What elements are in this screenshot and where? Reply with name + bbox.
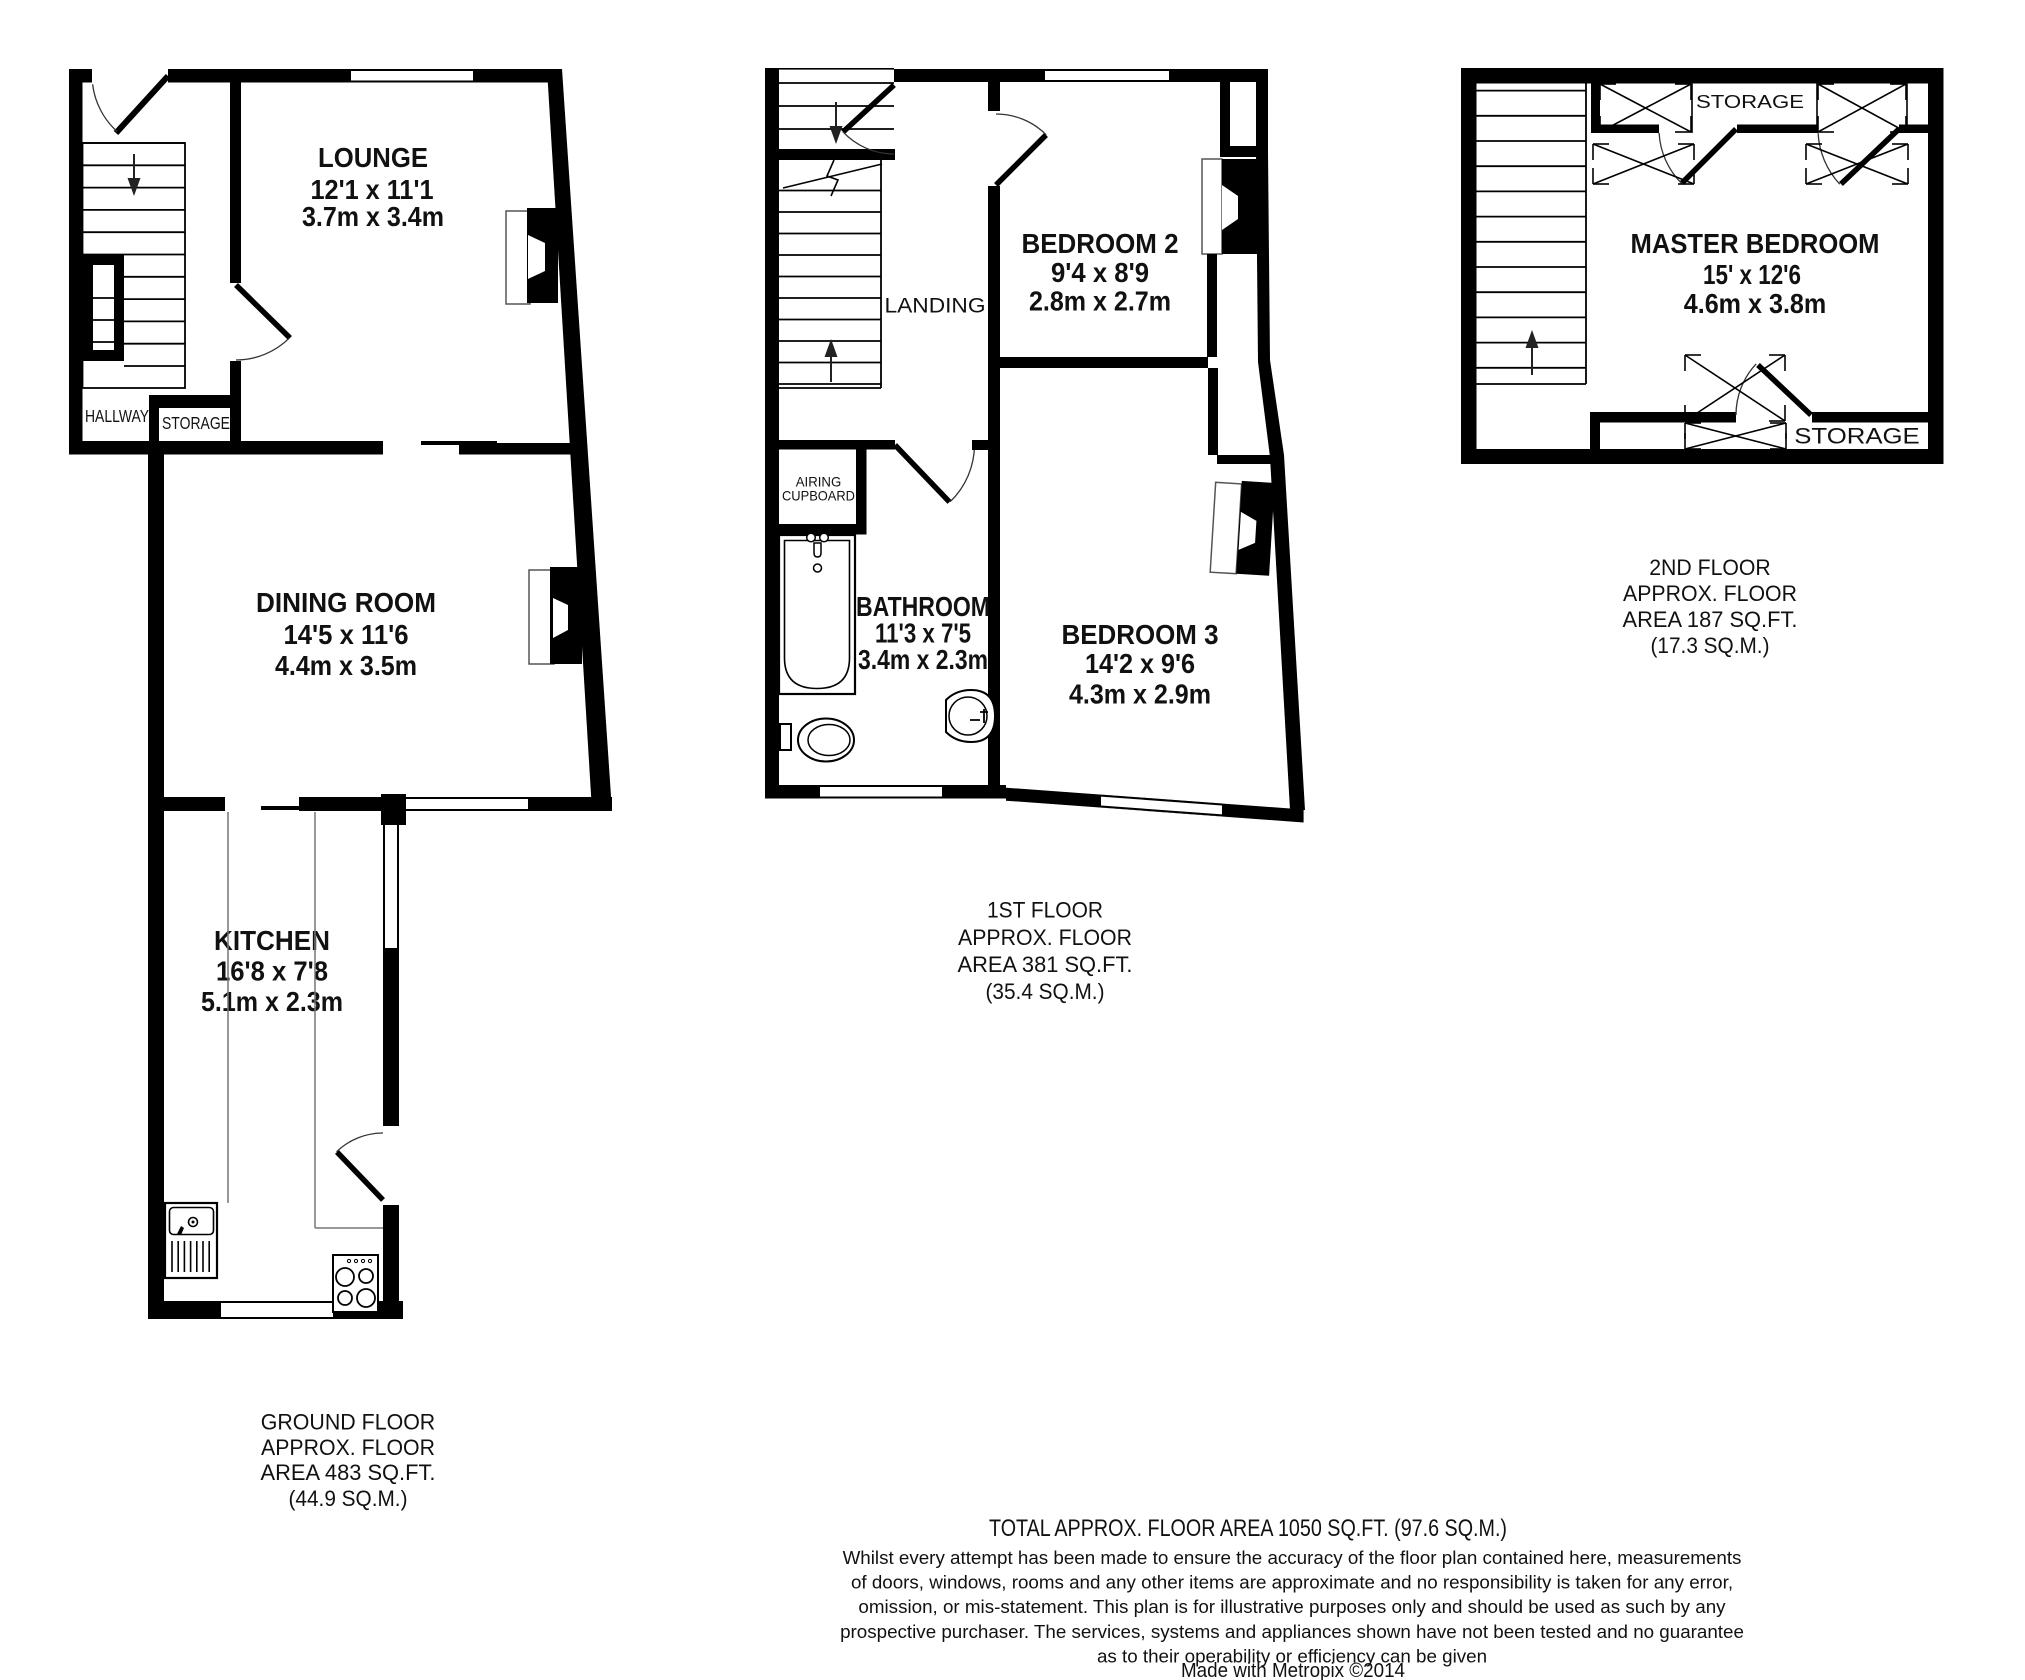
svg-text:16'8 x 7'8: 16'8 x 7'8 (216, 956, 328, 987)
svg-text:14'5 x 11'6: 14'5 x 11'6 (284, 619, 409, 650)
svg-text:TOTAL APPROX. FLOOR AREA 1050: TOTAL APPROX. FLOOR AREA 1050 SQ.FT. (97… (989, 1515, 1507, 1542)
svg-text:(35.4 SQ.M.): (35.4 SQ.M.) (986, 979, 1105, 1004)
svg-text:STORAGE: STORAGE (1696, 91, 1804, 112)
svg-text:Whilst every attempt has been: Whilst every attempt has been made to en… (843, 1547, 1742, 1568)
svg-text:3.7m x 3.4m: 3.7m x 3.4m (302, 201, 444, 232)
svg-text:prospective purchaser. The ser: prospective purchaser. The services, sys… (840, 1621, 1744, 1642)
svg-text:APPROX. FLOOR: APPROX. FLOOR (261, 1435, 435, 1460)
svg-text:KITCHEN: KITCHEN (214, 925, 330, 956)
svg-text:MASTER BEDROOM: MASTER BEDROOM (1631, 228, 1880, 259)
svg-text:LANDING: LANDING (885, 295, 986, 318)
svg-text:STORAGE: STORAGE (162, 413, 230, 433)
svg-text:LOUNGE: LOUNGE (318, 142, 428, 173)
svg-text:Made with Metropix ©2014: Made with Metropix ©2014 (1181, 1660, 1405, 1680)
svg-text:STORAGE: STORAGE (1794, 424, 1920, 449)
svg-text:(44.9 SQ.M.): (44.9 SQ.M.) (289, 1486, 408, 1511)
svg-text:9'4 x 8'9: 9'4 x 8'9 (1051, 257, 1149, 288)
svg-text:5.1m x 2.3m: 5.1m x 2.3m (201, 986, 343, 1017)
svg-text:15' x 12'6: 15' x 12'6 (1703, 259, 1801, 290)
svg-text:AREA 381 SQ.FT.: AREA 381 SQ.FT. (958, 952, 1133, 977)
svg-text:4.6m x 3.8m: 4.6m x 3.8m (1684, 288, 1827, 319)
svg-text:GROUND FLOOR: GROUND FLOOR (261, 1410, 436, 1435)
svg-text:APPROX. FLOOR: APPROX. FLOOR (1623, 581, 1797, 606)
svg-text:of doors, windows, rooms and a: of doors, windows, rooms and any other i… (851, 1572, 1733, 1593)
svg-text:(17.3 SQ.M.): (17.3 SQ.M.) (1651, 633, 1770, 658)
svg-text:BEDROOM 2: BEDROOM 2 (1022, 228, 1179, 259)
svg-text:2.8m x 2.7m: 2.8m x 2.7m (1029, 286, 1171, 317)
svg-text:CUPBOARD: CUPBOARD (782, 488, 855, 504)
svg-text:omission, or mis-statement. Th: omission, or mis-statement. This plan is… (858, 1596, 1726, 1617)
svg-text:AREA 483 SQ.FT.: AREA 483 SQ.FT. (261, 1460, 436, 1485)
svg-text:2ND FLOOR: 2ND FLOOR (1649, 555, 1771, 580)
svg-text:4.3m x 2.9m: 4.3m x 2.9m (1069, 679, 1211, 710)
svg-text:14'2 x 9'6: 14'2 x 9'6 (1085, 648, 1195, 679)
svg-text:4.4m x 3.5m: 4.4m x 3.5m (275, 650, 417, 681)
svg-text:AREA 187 SQ.FT.: AREA 187 SQ.FT. (1623, 607, 1798, 632)
svg-text:1ST FLOOR: 1ST FLOOR (987, 898, 1103, 923)
svg-text:BEDROOM 3: BEDROOM 3 (1062, 619, 1219, 650)
svg-text:3.4m x 2.3m: 3.4m x 2.3m (858, 644, 988, 675)
svg-text:DINING ROOM: DINING ROOM (256, 587, 436, 618)
svg-text:APPROX. FLOOR: APPROX. FLOOR (958, 925, 1132, 950)
svg-text:HALLWAY: HALLWAY (85, 406, 149, 426)
